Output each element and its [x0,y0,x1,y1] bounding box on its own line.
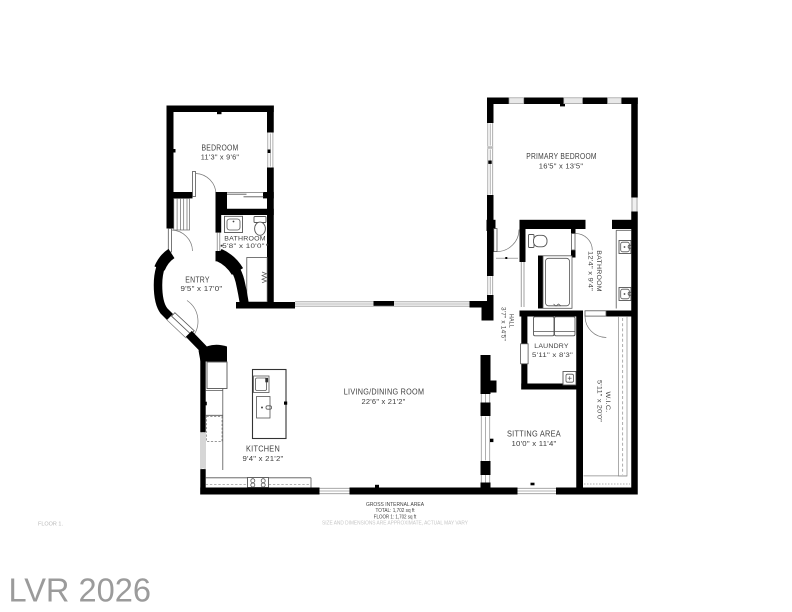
svg-text:SIZE AND DIMENSIONS ARE APPROX: SIZE AND DIMENSIONS ARE APPROXIMATE, ACT… [322,521,468,527]
svg-text:BATHROOM: BATHROOM [224,236,266,243]
svg-text:TOTAL: 1,702 sq ft: TOTAL: 1,702 sq ft [376,508,415,514]
svg-text:GROSS INTERNAL AREA: GROSS INTERNAL AREA [366,502,424,508]
svg-text:BATHROOM: BATHROOM [595,250,602,292]
svg-text:PRIMARY BEDROOM: PRIMARY BEDROOM [526,152,597,161]
svg-text:16'5" x 13'5": 16'5" x 13'5" [539,163,584,170]
svg-text:9'5" x 17'0": 9'5" x 17'0" [181,286,223,293]
svg-text:5'11" x 8'3": 5'11" x 8'3" [532,352,573,359]
svg-text:LIVING/DINING ROOM: LIVING/DINING ROOM [344,388,425,397]
svg-text:LAUNDRY: LAUNDRY [534,343,569,350]
svg-text:12'4" x 9'4": 12'4" x 9'4" [586,251,593,291]
svg-text:HALL: HALL [508,314,515,328]
svg-text:KITCHEN: KITCHEN [246,444,280,453]
svg-text:W.I.C.: W.I.C. [604,392,611,413]
svg-text:SITTING AREA: SITTING AREA [507,429,561,438]
svg-text:FLOOR 1: 1,702 sq ft: FLOOR 1: 1,702 sq ft [374,514,417,520]
svg-text:22'6" x 21'2": 22'6" x 21'2" [362,399,406,406]
svg-text:3'7" x 14'5": 3'7" x 14'5" [500,307,507,341]
svg-text:LVR 2026: LVR 2026 [9,573,152,610]
svg-text:5'11" x 20'0": 5'11" x 20'0" [596,380,603,422]
svg-text:FLOOR 1.: FLOOR 1. [38,521,63,527]
svg-text:10'0" x 11'4": 10'0" x 11'4" [512,441,557,448]
svg-text:ENTRY: ENTRY [185,276,210,285]
svg-text:5'8" x 10'0": 5'8" x 10'0" [222,243,265,250]
svg-text:BEDROOM: BEDROOM [202,144,239,153]
svg-text:11'3" x 9'6": 11'3" x 9'6" [201,154,240,161]
svg-text:9'4" x 21'2": 9'4" x 21'2" [243,456,284,463]
